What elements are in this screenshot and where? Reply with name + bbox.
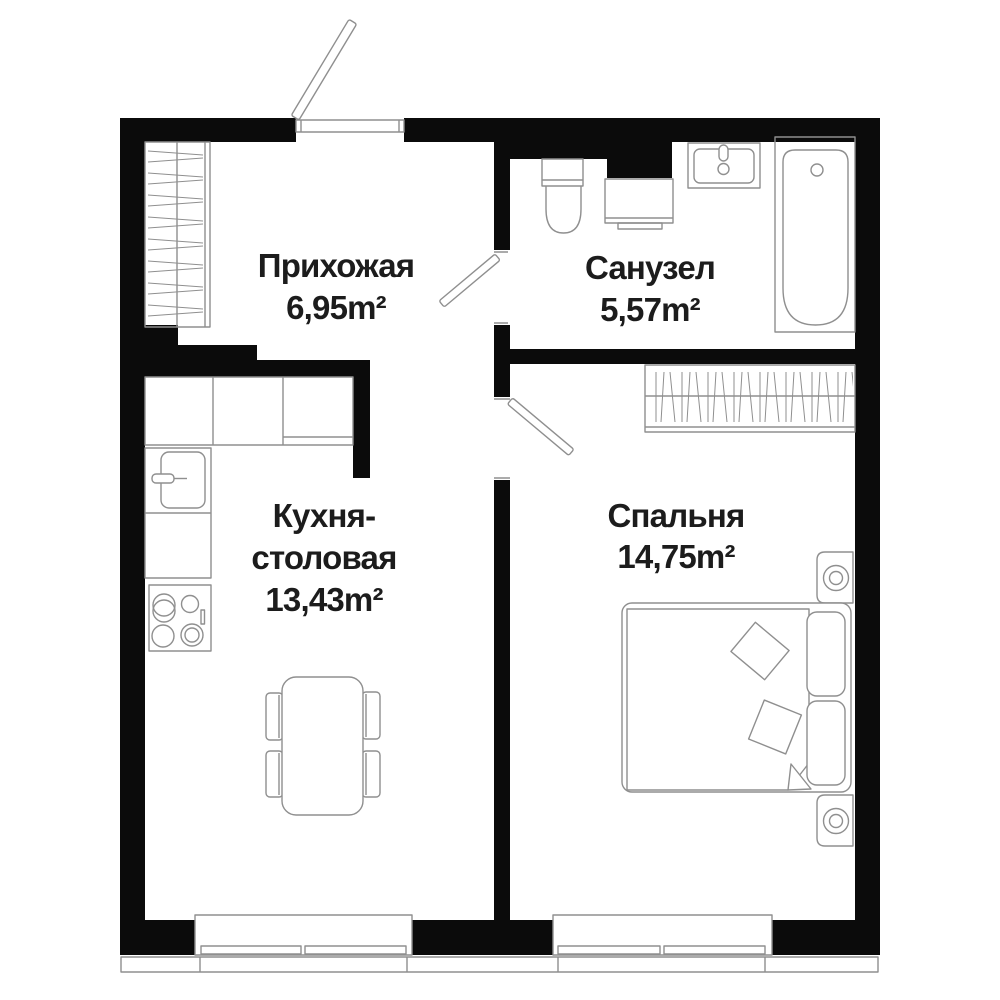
window-glazing [201, 946, 301, 954]
bedroom-door-leaf [507, 398, 573, 456]
faucet-icon [719, 145, 728, 161]
kitchen-sink [152, 452, 205, 508]
pillow [807, 701, 845, 785]
nightstand [817, 795, 853, 846]
room-name-kitchen-line1: Кухня- [273, 497, 376, 534]
chair [362, 751, 380, 797]
room-area-bathroom: 5,57m² [600, 291, 701, 328]
pillow [807, 612, 845, 696]
bathtub [775, 137, 855, 332]
wall-segment [120, 325, 178, 347]
wall-segment [494, 480, 510, 920]
wall-segment [607, 142, 672, 178]
dining-set [266, 677, 380, 815]
wall-segment [855, 118, 880, 955]
hallway: Прихожая 6,95m² [145, 142, 414, 327]
chair [266, 693, 283, 740]
bathroom-sink [688, 143, 760, 188]
wall-segment [120, 920, 195, 955]
window-glazing [305, 946, 406, 954]
wall-segment [120, 345, 257, 362]
toilet [542, 159, 583, 233]
window-glazing [664, 946, 765, 954]
bathroom-door [439, 252, 508, 323]
wall-segment [412, 920, 553, 955]
stove [149, 585, 211, 651]
chair [266, 751, 283, 797]
blanket [627, 609, 809, 790]
wall-segment [772, 920, 855, 955]
bathroom-door-leaf [439, 254, 500, 307]
room-area-kitchen: 13,43m² [265, 581, 383, 618]
wall-segment [404, 118, 855, 142]
washing-machine [605, 179, 673, 229]
door-jamb-mark [494, 399, 510, 478]
hallway-wardrobe-hatch [145, 143, 205, 326]
bedroom-door [494, 398, 574, 478]
bedroom-wardrobe [645, 365, 855, 432]
oven-handle [201, 610, 205, 624]
wall-segment [120, 118, 145, 955]
room-name-kitchen-line2: столовая [251, 539, 396, 576]
nightstand [817, 552, 853, 603]
chair [362, 692, 380, 739]
floor-plan: Прихожая 6,95m² Санузел 5,5 [0, 0, 1000, 1000]
bathroom: Санузел 5,57m² [542, 137, 855, 332]
entrance-threshold [296, 120, 404, 132]
wall-segment [494, 349, 855, 364]
window-glazing [558, 946, 660, 954]
room-area-hallway: 6,95m² [286, 289, 387, 326]
room-name-hallway: Прихожая [258, 247, 414, 284]
entrance-door-leaf [291, 19, 356, 120]
entrance-door [291, 19, 404, 132]
faucet-icon [152, 474, 174, 483]
facade-divider [200, 957, 765, 972]
room-area-bedroom: 14,75m² [617, 538, 735, 575]
wall-segment [120, 360, 370, 377]
dining-table [282, 677, 363, 815]
room-name-bedroom: Спальня [608, 497, 745, 534]
drain-icon [811, 164, 823, 176]
wall-segment [353, 376, 370, 478]
bed [622, 603, 851, 792]
walls [120, 118, 880, 955]
wall-segment [120, 118, 296, 142]
bedroom: Спальня 14,75m² [608, 365, 855, 846]
room-name-bathroom: Санузел [585, 249, 715, 286]
bedroom-wardrobe-hatch [651, 372, 853, 422]
wall-segment [494, 142, 607, 159]
